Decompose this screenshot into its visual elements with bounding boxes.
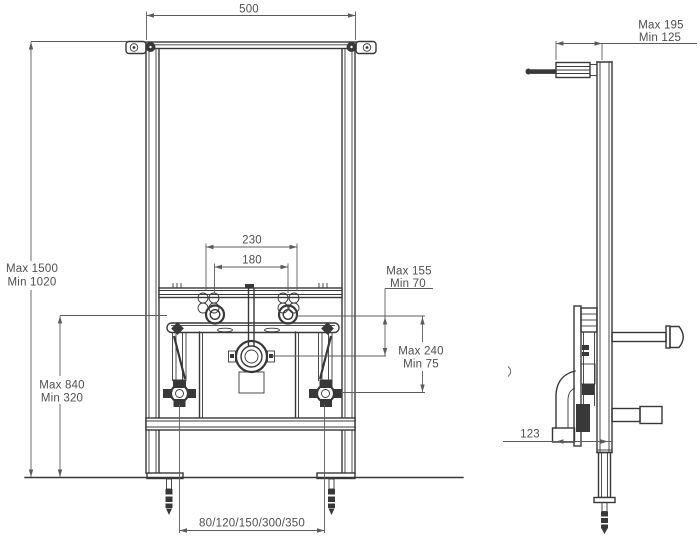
foot-right <box>317 473 355 515</box>
dim-height-total: Max 1500 Min 1020 <box>6 42 127 478</box>
side-water-fitting <box>612 407 662 424</box>
dim-height-lower-max: Max 840 <box>39 380 85 392</box>
side-view <box>508 62 683 534</box>
dim-right-lower-max: Max 240 <box>398 346 444 358</box>
anchor-screw <box>531 69 556 74</box>
dim-right-upper-min: Min 70 <box>390 278 426 290</box>
brace-right <box>319 333 333 381</box>
fixing-plate <box>574 306 597 446</box>
dim-width-500: 500 <box>147 4 356 41</box>
wall-bracket-right <box>347 42 377 54</box>
bottom-rail <box>146 418 355 430</box>
dim-right-lower: Max 240 Min 75 <box>341 317 444 393</box>
dim-drain-offset: 123 <box>503 429 612 444</box>
flange-bar <box>167 322 339 335</box>
dim-height-lower-min: Min 320 <box>41 393 83 405</box>
technical-drawing-canvas: 500 Max 1500 Min 1020 Max 840 Min 320 <box>0 0 700 539</box>
drain-fitting <box>229 289 275 393</box>
drain-connector <box>576 404 590 432</box>
installation-frame-drawing: 500 Max 1500 Min 1020 Max 840 Min 320 <box>0 0 700 539</box>
dim-wall-distance-max: Max 195 <box>638 20 684 32</box>
water-valve-left <box>163 380 196 408</box>
dim-wall-distance-min: Min 125 <box>639 32 681 44</box>
dim-drain-offset-label: 123 <box>520 429 540 441</box>
foot-left <box>147 473 183 515</box>
upper-crossbar <box>159 283 342 298</box>
dimensions: 500 Max 1500 Min 1020 Max 840 Min 320 <box>6 4 697 534</box>
side-foot <box>594 453 615 535</box>
dim-230-label: 230 <box>242 235 262 247</box>
water-valve-right <box>309 380 342 408</box>
dim-right-upper-max: Max 155 <box>386 266 432 278</box>
dim-bottom-label: 80/120/150/300/350 <box>199 518 305 530</box>
drain-box <box>239 372 264 393</box>
dim-height-total-max: Max 1500 <box>6 263 58 275</box>
wall-anchor-arm <box>526 63 598 78</box>
dim-wall-distance: Max 195 Min 125 <box>556 20 697 61</box>
dim-width-label: 500 <box>239 4 259 16</box>
dim-height-lower: Max 840 Min 320 <box>39 316 167 478</box>
drain-elbow <box>553 371 576 442</box>
side-rail <box>597 62 612 453</box>
brace-left <box>173 333 187 381</box>
top-rail <box>146 42 356 49</box>
wall-bracket-left <box>126 42 156 54</box>
side-stud <box>612 326 683 348</box>
dim-right-lower-min: Min 75 <box>403 359 439 371</box>
dim-height-total-min: Min 1020 <box>8 277 57 289</box>
anchor-screw-head <box>526 69 532 75</box>
stray-mark <box>508 367 511 377</box>
dim-180-label: 180 <box>242 255 262 267</box>
